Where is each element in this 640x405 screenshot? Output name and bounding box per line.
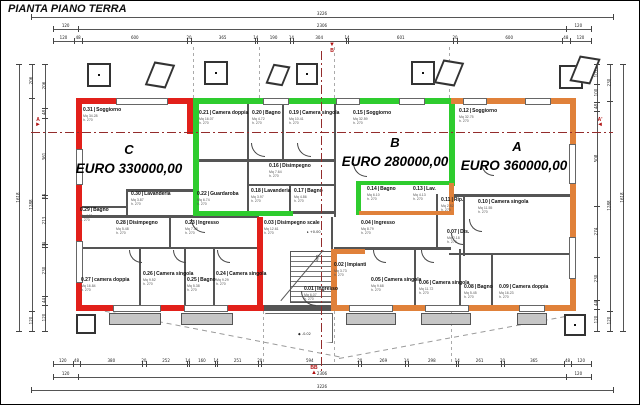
room-number: 0.05 (371, 277, 381, 283)
dimension-tick (16, 64, 22, 65)
terrace-slab (421, 313, 471, 325)
room-height: h. 270 (464, 295, 493, 299)
dimension-tick (42, 247, 48, 248)
dimension-value: 120 (51, 371, 81, 376)
room-name: Bagno (200, 277, 216, 283)
room-number: 0.19 (289, 110, 299, 116)
room-height: h. 270 (419, 291, 469, 295)
dimension-value: 274 (594, 216, 599, 246)
dimension-tick (620, 331, 626, 332)
room-number: 0.17 (294, 188, 304, 194)
dimension-tick (348, 38, 349, 44)
section-line-bb (321, 51, 322, 373)
room-height: h. 270 (459, 119, 497, 123)
room-number: 0.03 (264, 220, 274, 226)
dimension-tick (594, 257, 600, 258)
terrace-slab (517, 313, 547, 325)
window (463, 98, 487, 105)
dimension-tick (591, 26, 592, 32)
room-label: 0.17 | BagnoMq 4.86h. 270 (294, 189, 323, 203)
dimension-tick (146, 361, 147, 367)
room-name: Impianti (347, 262, 366, 268)
dimension-line (31, 17, 613, 18)
apartment-c-price: EURO 330000,00 (63, 161, 195, 176)
room-number: 0.30 (131, 191, 141, 197)
interior-wall (449, 253, 571, 255)
section-marker-a2-icon: ◄ (593, 123, 607, 128)
dimension-value: 206 (29, 66, 34, 96)
apartment-boundary-b (356, 181, 361, 215)
room-number: 0.26 (143, 271, 153, 277)
dimension-value: 120 (51, 23, 81, 28)
room-label: 0.21 | Camera doppiaMq 16.07h. 270 (199, 111, 248, 125)
dimension-tick (78, 374, 79, 380)
interior-wall (291, 211, 336, 214)
room-name: Bagno (265, 110, 281, 116)
room-name: Disimpegno (129, 220, 158, 226)
room-name: Camera singola (229, 271, 266, 277)
window (349, 305, 393, 312)
room-number: 0.25 (187, 277, 197, 283)
dimension-value: 20 (440, 35, 470, 40)
dimension-tick (16, 331, 22, 332)
room-number: 0.12 (459, 108, 469, 114)
room-label: 0.25 | BagnoMq 5.38h. 270 (187, 278, 216, 292)
dimension-value: 3226 (307, 11, 337, 16)
dimension-tick (594, 206, 600, 207)
terrace-slab (181, 313, 233, 325)
casement-window-icon (145, 61, 176, 88)
dimension-value: 365 (208, 35, 238, 40)
room-number: 0.07 (447, 229, 457, 235)
dimension-value: 120 (42, 303, 47, 333)
room-label: 0.14 | BagnoMq 6.10h. 270 (367, 187, 396, 201)
room-label: 0.29 | BagnoMq 4.31h. 270 (80, 208, 109, 222)
room-height: h. 270 (499, 295, 548, 299)
room-label: 0.02 | ImpiantiMq 3.73h. 270 (334, 263, 366, 277)
room-height: h. 270 (143, 282, 193, 286)
dimension-tick (42, 198, 48, 199)
chimney-box (296, 63, 318, 85)
dimension-line (53, 377, 591, 378)
dimension-value: 508 (594, 143, 599, 173)
room-name: Disimpegno (282, 163, 311, 169)
room-name: camera doppia (94, 277, 129, 283)
dimension-value: 120 (563, 371, 593, 376)
room-label: 0.23 | IngressoMq 7.38h. 270 (185, 221, 219, 235)
room-height: h. 270 (441, 208, 463, 212)
interior-wall (259, 305, 334, 311)
room-number: 0.14 (367, 186, 377, 192)
room-number: 0.01 (304, 286, 314, 292)
dimension-tick (613, 387, 614, 393)
casement-window-icon (434, 59, 465, 86)
dimension-tick (594, 111, 600, 112)
dimension-tick (408, 361, 409, 367)
interior-wall (247, 161, 249, 213)
section-marker-a-icon: ► (31, 123, 45, 128)
dimension-tick (29, 331, 35, 332)
dimension-line (53, 364, 591, 365)
dimension-tick (607, 331, 613, 332)
room-number: 0.28 (116, 220, 126, 226)
room-name: Ingresso (374, 220, 395, 226)
chimney-box (87, 63, 111, 87)
room-name: Camera singola (384, 277, 421, 283)
room-height: h. 270 (199, 121, 248, 125)
room-height: h. 270 (269, 174, 311, 178)
room-label: 0.05 | Camera singolaMq 9.68h. 270 (371, 278, 421, 292)
dimension-tick (217, 361, 218, 367)
interior-wall (247, 184, 336, 186)
room-name: Bagno (93, 207, 109, 213)
room-name: Guardaroba (210, 191, 238, 197)
interior-wall (169, 217, 171, 249)
dimension-tick (82, 38, 83, 44)
room-label: 0.08 | BagnoMq 5.45h. 270 (464, 285, 493, 299)
page-title: PIANTA PIANO TERRA (8, 3, 127, 15)
dimension-tick (591, 38, 592, 44)
room-height: h. 270 (353, 121, 391, 125)
interior-wall (334, 161, 336, 217)
apartment-boundary-c (257, 217, 263, 311)
interior-wall (436, 217, 438, 249)
room-height: h. 270 (294, 199, 323, 203)
room-label: 0.24 | Camera singolaMq 9.29h. 270 (216, 272, 266, 286)
room-name: Camera doppia (512, 284, 548, 290)
room-label: 0.22 | GuardarobaMq 6.74h. 270 (197, 192, 238, 206)
room-name: Soggiorno (366, 110, 391, 116)
room-name: Camera singola (491, 199, 528, 205)
room-height: h. 270 (197, 202, 238, 206)
room-number: 0.29 (80, 207, 90, 213)
room-number: 0.20 (252, 110, 262, 116)
room-label: 0.13 | Lav.Mq 4.13h. 270 (413, 187, 436, 201)
room-label: 0.31 | SoggiornoMq 34.28h. 270 (83, 108, 121, 122)
room-label: 0.19 | Camera singolaMq 10.41h. 270 (289, 111, 339, 125)
dimension-value: 361 (42, 141, 47, 171)
section-marker-b-top: ▼B (325, 43, 339, 54)
apartment-a-price: EURO 360000,00 (453, 158, 575, 173)
window (336, 98, 360, 105)
room-height: h. 270 (216, 282, 266, 286)
room-label: 0.26 | Camera singolaMq 9.52h. 270 (143, 272, 193, 286)
apartment-boundary-a (570, 98, 576, 311)
dimension-tick (293, 38, 294, 44)
room-number: 0.31 (83, 107, 93, 113)
dimension-value: 304 (304, 35, 334, 40)
chimney-box (76, 314, 96, 334)
room-label: 0.11 | Rip.Mq 2.52h. 270 (441, 198, 463, 212)
dimension-value: 600 (494, 35, 524, 40)
room-height: h. 270 (371, 288, 421, 292)
room-height: h. 270 (83, 118, 121, 122)
dimension-tick (607, 64, 613, 65)
window (116, 98, 168, 105)
room-name: Disimpegno scale (277, 220, 320, 226)
room-number: 0.13 (413, 186, 423, 192)
apartment-b-letter: B (339, 135, 451, 150)
room-height: h. 270 (185, 231, 219, 235)
section-marker-b-top-label: B (330, 48, 334, 54)
room-name: Ingresso (198, 220, 219, 226)
window (519, 305, 545, 312)
room-height: h. 270 (447, 240, 469, 244)
room-label: 0.27 | camera doppiaMq 16.84h. 270 (81, 278, 129, 292)
apartment-a-letter: A (457, 139, 577, 154)
room-number: 0.15 (353, 110, 363, 116)
room-number: 0.11 (441, 197, 450, 203)
room-number: 0.04 (361, 220, 371, 226)
room-name: Camera doppia (212, 110, 248, 116)
section-marker-a: A► (31, 117, 45, 128)
section-line-aa (31, 132, 613, 133)
terrace-slab (346, 313, 396, 325)
section-marker-b-bottom-icon: ▲ (307, 371, 321, 376)
dimension-value: 14 (276, 35, 306, 40)
dimension-tick (261, 361, 262, 367)
section-marker-a2: A'◄ (593, 117, 607, 128)
room-label: 0.18 | LavanderiaMq 3.97h. 270 (251, 189, 291, 203)
room-height: h. 270 (251, 199, 291, 203)
room-height: h. 270 (187, 288, 216, 292)
room-label: 0.30 | LavanderiaMq 3.87h. 270 (131, 192, 171, 206)
window (113, 305, 161, 312)
dimension-tick (620, 64, 626, 65)
room-number: 0.22 (197, 191, 207, 197)
dimension-tick (42, 331, 48, 332)
dimension-tick (458, 361, 459, 367)
dimension-tick (361, 361, 362, 367)
room-number: 0.02 (334, 262, 344, 268)
window (184, 305, 228, 312)
chimney-box (411, 61, 435, 85)
dimension-value: 120 (563, 23, 593, 28)
room-name: Soggiorno (472, 108, 497, 114)
room-name: Bagno (380, 186, 396, 192)
room-name: Lavanderia (144, 191, 170, 197)
room-name: Bagno (477, 284, 493, 290)
dimension-line (31, 390, 613, 391)
room-height: h. 270 (361, 231, 395, 235)
chimney-box (204, 61, 228, 85)
dimension-value: 1288 (607, 191, 612, 221)
room-label: 0.20 | BagnoMq 4.72h. 270 (252, 111, 281, 125)
interior-wall (334, 98, 336, 161)
apartment-boundary-c (76, 305, 264, 311)
dimension-tick (594, 331, 600, 332)
dimension-line (53, 41, 591, 42)
dimension-value: 206 (42, 71, 47, 101)
apartment-boundary-b (356, 181, 451, 185)
dimension-tick (42, 64, 48, 65)
room-height: h. 270 (478, 210, 528, 214)
construction-line (263, 311, 264, 363)
dimension-value: 14 (332, 35, 362, 40)
room-number: 0.18 (251, 188, 261, 194)
dimension-tick (457, 38, 458, 44)
dimension-line (53, 29, 591, 30)
room-height: h. 270 (334, 273, 366, 277)
apartment-b-price: EURO 280000,00 (337, 154, 453, 169)
dimension-value: 2306 (307, 23, 337, 28)
dimension-value: 48 (63, 35, 93, 40)
dimension-tick (80, 361, 81, 367)
room-height: h. 270 (81, 288, 129, 292)
room-height: h. 270 (367, 197, 396, 201)
section-marker-b-bottom: BB▲ (307, 365, 321, 376)
apartment-boundary-b (193, 211, 293, 216)
dimension-tick (29, 98, 35, 99)
dimension-value: 1288 (29, 189, 34, 219)
window (425, 305, 469, 312)
dimension-tick (504, 361, 505, 367)
room-number: 0.08 (464, 284, 474, 290)
room-number: 0.24 (216, 271, 226, 277)
dimension-tick (591, 374, 592, 380)
level-entry: ▸ +0.00 (307, 230, 321, 234)
dimension-value: 48 (61, 358, 91, 363)
dimension-value: 365 (519, 358, 549, 363)
room-name: Soggiorno (96, 107, 121, 113)
interior-wall (459, 249, 461, 305)
room-name: Lavanderia (264, 188, 290, 194)
floor-plan-canvas: PIANTA PIANO TERRA C EURO 330000,00 B EU… (0, 0, 640, 405)
room-label: 0.15 | SoggiornoMq 32.59h. 270 (353, 111, 391, 125)
room-number: 0.10 (478, 199, 488, 205)
dimension-value: 230 (607, 67, 612, 97)
room-label: 0.09 | Camera doppiaMq 16.23h. 270 (499, 285, 548, 299)
room-label: 0.07 | Dis.Mq 2.18h. 270 (447, 230, 469, 244)
room-number: 0.21 (199, 110, 209, 116)
dimension-value: 600 (120, 35, 150, 40)
room-number: 0.27 (81, 277, 91, 283)
room-number: 0.23 (185, 220, 195, 226)
stair-rise-dim: 480 (315, 255, 319, 262)
room-height: h. 270 (413, 197, 436, 201)
room-number: 0.06 (419, 280, 429, 286)
dimension-tick (591, 361, 592, 367)
room-height: h. 270 (252, 121, 281, 125)
room-name: Lav. (426, 186, 436, 192)
room-number: 0.09 (499, 284, 509, 290)
window (525, 98, 551, 105)
interior-wall (247, 98, 249, 161)
level-outside: ◆ -0.02 (298, 332, 311, 336)
room-label: 0.28 | DisimpegnoMq 5.48h. 270 (116, 221, 158, 235)
room-label: 0.06 | Camera singolaMq 11.72h. 270 (419, 281, 469, 295)
window (263, 98, 289, 105)
interior-wall (193, 159, 336, 162)
apartment-c-letter: C (65, 142, 193, 157)
dimension-value: 380 (96, 358, 126, 363)
dimension-value: 3226 (307, 384, 337, 389)
entrance-canopy (265, 313, 333, 343)
dimension-tick (31, 387, 32, 393)
dimension-value: 20 (174, 35, 204, 40)
dimension-value: 20 (488, 358, 518, 363)
dimension-value: 120 (594, 304, 599, 334)
interior-wall (449, 194, 571, 197)
room-label: 0.12 | SoggiornoMq 32.75h. 270 (459, 109, 497, 123)
room-label: 0.16 | DisimpegnoMq 7.64h. 270 (269, 164, 311, 178)
interior-wall (76, 247, 259, 249)
room-label: 0.10 | Camera singolaMq 11.55h. 270 (478, 200, 528, 214)
dimension-value: 20 (245, 358, 275, 363)
dimension-tick (78, 26, 79, 32)
dimension-value: 601 (386, 35, 416, 40)
room-height: h. 270 (116, 231, 158, 235)
apartment-boundary-a (359, 211, 451, 215)
dimension-tick (613, 14, 614, 20)
terrace-slab (109, 313, 161, 325)
interior-wall (331, 217, 333, 251)
casement-window-icon (265, 64, 290, 87)
dimension-tick (191, 38, 192, 44)
apartment-boundary-a (331, 249, 365, 254)
room-height: h. 270 (289, 121, 339, 125)
dimension-value: 1618 (16, 182, 21, 212)
dimension-tick (607, 101, 613, 102)
interior-wall (126, 189, 128, 217)
room-name: Dis. (460, 229, 469, 235)
chimney-box (564, 314, 586, 336)
dimension-value: 1618 (620, 182, 625, 212)
dimension-value: 230 (42, 256, 47, 286)
room-height: h. 270 (80, 218, 109, 222)
window (569, 237, 576, 279)
interior-wall (282, 98, 284, 161)
window (399, 98, 425, 105)
room-label: 0.04 | IngressoMq 8.79h. 270 (361, 221, 395, 235)
room-number: 0.16 (269, 163, 279, 169)
room-height: h. 270 (131, 202, 171, 206)
room-name: Rip. (454, 197, 463, 203)
